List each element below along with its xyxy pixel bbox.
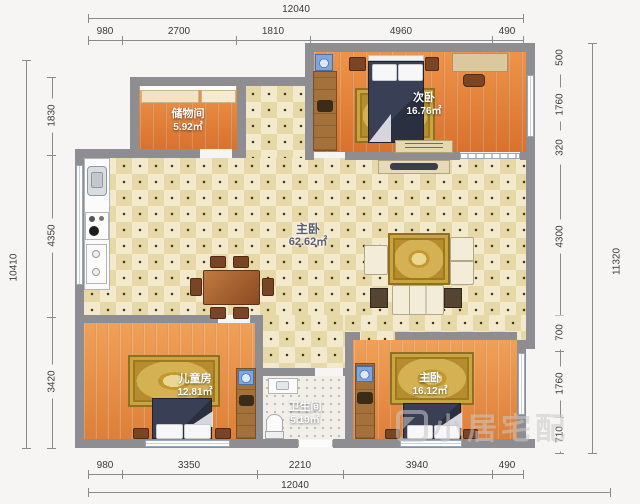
- loveseat: [450, 237, 474, 285]
- wall-master-left: [345, 332, 353, 448]
- toilet-tank: [265, 431, 284, 439]
- dim-label: 3350: [178, 460, 200, 471]
- kitchen-sink-basin: [91, 172, 103, 188]
- living-room-name: 主卧: [289, 223, 328, 236]
- dim-label: 1760: [555, 367, 566, 401]
- dim-label: 4350: [47, 219, 58, 253]
- dim-tick: [555, 351, 564, 352]
- dim-label: 500: [555, 41, 566, 75]
- floor-plan-canvas: 储物间 5.92㎡ 次卧 16.76㎡ 主卧 62.62㎡ 儿童房 12.81㎡…: [0, 0, 640, 504]
- storage-room-name: 储物间: [172, 108, 205, 121]
- master-room-label: 主卧 16.12㎡: [412, 372, 447, 398]
- kids-bed: [152, 398, 212, 439]
- dim-tick: [523, 36, 524, 45]
- kids-nightstand-right: [215, 428, 231, 439]
- dining-table: [203, 270, 260, 305]
- master-room-name: 主卧: [412, 372, 447, 385]
- dim-label: 4960: [390, 26, 412, 37]
- dim-label-left-total: 10410: [9, 251, 20, 285]
- dining-chair-5: [190, 278, 202, 296]
- kids-wardrobe-item: [239, 395, 254, 406]
- secondary-nightstand-right: [425, 57, 439, 71]
- tv: [390, 163, 438, 170]
- bathroom-sink-basin: [276, 381, 289, 390]
- side-table-right: [444, 288, 462, 308]
- watermark-text: 小居宅配: [433, 404, 569, 448]
- dim-tick: [257, 470, 258, 479]
- dim-line-bottom-total: [88, 492, 610, 493]
- watermark: 小居宅配: [396, 404, 569, 448]
- dim-label: 2700: [168, 26, 190, 37]
- living-room-rug: [388, 233, 450, 285]
- dim-label: 2210: [289, 460, 311, 471]
- wall-secondary-bottom-b: [520, 152, 535, 160]
- secondary-dresser-line-1: [405, 143, 443, 144]
- secondary-blanket-fold: [369, 114, 391, 142]
- secondary-wardrobe-item: [317, 100, 333, 112]
- dim-label-top-total: 12040: [282, 4, 310, 15]
- dim-label: 1830: [47, 99, 58, 133]
- bathroom-name: 卫生间: [289, 401, 322, 414]
- storage-wardrobe-right: [201, 90, 236, 103]
- armchair: [364, 245, 388, 275]
- stove-burner-small-2: [99, 216, 104, 221]
- living-room-label: 主卧 62.62㎡: [289, 223, 328, 249]
- wall-storage-bottom-b: [232, 149, 245, 158]
- master-wardrobe-item: [357, 392, 373, 404]
- dim-label: 490: [499, 26, 516, 37]
- wall-bathroom-top-a: [255, 368, 315, 376]
- kids-room-label: 儿童房 12.81㎡: [177, 373, 212, 399]
- dim-tick: [122, 36, 123, 45]
- storage-wardrobe-left: [141, 90, 199, 103]
- dim-tick: [310, 36, 311, 45]
- dim-tick: [523, 14, 524, 23]
- dining-chair-2: [233, 256, 249, 268]
- dining-chair-6: [262, 278, 274, 296]
- side-table-left: [370, 288, 388, 308]
- dim-tick: [122, 470, 123, 479]
- dim-line-bottom-segments: [88, 474, 523, 475]
- wall-kitchen-top: [75, 149, 139, 158]
- wall-kids-top-a: [75, 315, 218, 323]
- dim-tick: [343, 470, 344, 479]
- sofa: [392, 285, 444, 315]
- dim-tick: [47, 317, 56, 318]
- secondary-nightstand-left: [349, 57, 366, 71]
- master-washer: [356, 366, 373, 382]
- dim-tick: [88, 14, 89, 23]
- dim-tick: [47, 155, 56, 156]
- dim-label-bottom-total: 12040: [281, 480, 309, 491]
- dim-label: 1810: [262, 26, 284, 37]
- kids-nightstand-left: [133, 428, 149, 439]
- dim-tick: [555, 453, 564, 454]
- dim-tick: [523, 470, 524, 479]
- secondary-dresser-line-2: [405, 147, 443, 148]
- dim-tick: [22, 60, 31, 61]
- corridor-floor: [263, 315, 345, 368]
- dim-label-right-total: 11320: [612, 245, 623, 279]
- dim-tick: [588, 453, 597, 454]
- dim-label: 4300: [555, 220, 566, 254]
- dim-line-left-total: [26, 60, 27, 448]
- watermark-logo-icon: [396, 410, 428, 442]
- dim-label: 490: [499, 460, 516, 471]
- secondary-washer: [315, 54, 333, 71]
- dim-tick: [88, 488, 89, 497]
- kids-pillow-left: [156, 424, 183, 439]
- wall-master-top-a: [353, 332, 360, 340]
- window-kids-bottom: [145, 440, 230, 447]
- stove-burner-large: [89, 226, 99, 236]
- dining-chair-3: [210, 307, 226, 319]
- secondary-room-label: 次卧 16.76㎡: [406, 92, 441, 118]
- wall-storage-right: [237, 77, 246, 158]
- kids-room-name: 儿童房: [177, 373, 212, 386]
- sliding-door-secondary: [460, 153, 520, 159]
- secondary-room-area: 16.76㎡: [406, 105, 441, 118]
- dim-tick: [588, 43, 597, 44]
- dim-tick: [610, 488, 611, 497]
- window-kitchen-left: [76, 165, 83, 285]
- storage-room-area: 5.92㎡: [172, 121, 205, 134]
- dim-tick: [88, 36, 89, 45]
- dim-label: 3420: [47, 365, 58, 399]
- dim-label: 1760: [555, 88, 566, 122]
- kids-room-area: 12.81㎡: [177, 386, 212, 399]
- wall-kids-right: [255, 315, 263, 448]
- bathroom-area: 5.19㎡: [289, 414, 322, 427]
- secondary-room-name: 次卧: [406, 92, 441, 105]
- wall-secondary-bottom-a: [345, 152, 460, 160]
- secondary-pillow-right: [398, 64, 423, 81]
- wall-storage-bottom-a: [139, 149, 200, 158]
- wall-top-right: [305, 43, 535, 52]
- dim-line-right-total: [592, 43, 593, 453]
- dim-label: 700: [555, 316, 566, 350]
- dim-line-top-segments: [88, 40, 523, 41]
- entry-hall-floor: [245, 86, 305, 158]
- dim-tick: [88, 470, 89, 479]
- dim-label: 320: [555, 131, 566, 165]
- dim-tick: [236, 36, 237, 45]
- appliance-knob-1: [92, 250, 100, 258]
- dim-tick: [47, 77, 56, 78]
- secondary-pillow-left: [372, 64, 397, 81]
- dim-tick: [22, 448, 31, 449]
- master-room-area: 16.12㎡: [412, 385, 447, 398]
- dining-chair-4: [233, 307, 249, 319]
- dim-label: 3940: [406, 460, 428, 471]
- kids-washer: [238, 370, 254, 385]
- storage-room-label: 储物间 5.92㎡: [172, 108, 205, 134]
- wall-top-left: [130, 77, 313, 86]
- stove-burner-small-1: [89, 216, 95, 222]
- bathroom-label: 卫生间 5.19㎡: [289, 401, 322, 427]
- living-room-area: 62.62㎡: [289, 236, 328, 249]
- dining-chair-1: [210, 256, 226, 268]
- secondary-desk-chair: [463, 74, 485, 87]
- wall-bathroom-top-b: [343, 368, 353, 376]
- wall-master-top-b: [395, 332, 517, 340]
- secondary-desk: [452, 53, 508, 72]
- dim-label: 980: [97, 26, 114, 37]
- dim-line-top-total: [88, 18, 523, 19]
- kids-pillow-right: [184, 424, 211, 439]
- dim-tick: [492, 36, 493, 45]
- dim-tick: [47, 448, 56, 449]
- dim-label: 980: [97, 460, 114, 471]
- window-secondary-right: [527, 75, 534, 137]
- wall-storage-left: [130, 77, 139, 158]
- bathroom-door-threshold: [298, 440, 333, 447]
- dim-tick: [492, 470, 493, 479]
- appliance-knob-2: [92, 268, 100, 276]
